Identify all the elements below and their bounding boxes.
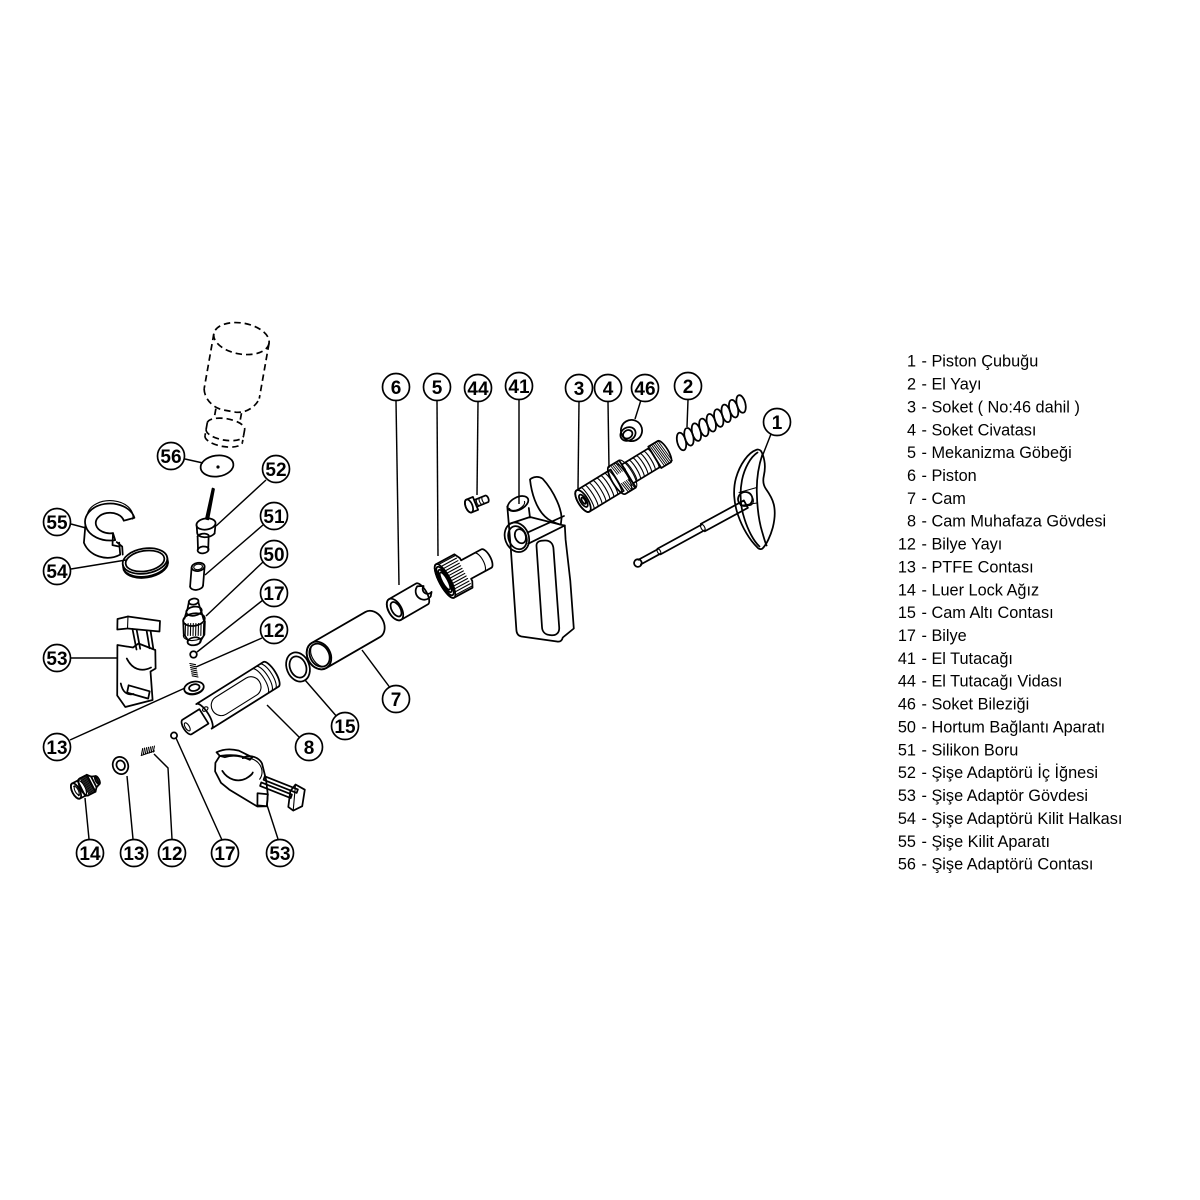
svg-text:53: 53 (898, 787, 916, 805)
svg-text:2: 2 (907, 376, 916, 394)
svg-text:13: 13 (123, 844, 144, 865)
svg-text:4: 4 (603, 379, 614, 400)
svg-text:53: 53 (46, 649, 67, 670)
svg-text:- El Tutacağı Vidası: - El Tutacağı Vidası (922, 673, 1063, 691)
svg-text:- Cam Muhafaza Gövdesi: - Cam Muhafaza Gövdesi (922, 513, 1107, 531)
svg-text:44: 44 (898, 673, 916, 691)
svg-text:7: 7 (907, 490, 916, 508)
svg-text:56: 56 (898, 856, 916, 874)
svg-text:1: 1 (772, 413, 783, 434)
svg-text:2: 2 (683, 377, 694, 398)
svg-text:54: 54 (46, 562, 68, 583)
svg-text:15: 15 (898, 604, 916, 622)
svg-text:14: 14 (898, 581, 916, 599)
svg-text:1: 1 (907, 353, 916, 371)
svg-text:14: 14 (79, 844, 101, 865)
svg-text:- El Tutacağı: - El Tutacağı (922, 650, 1013, 668)
svg-text:5: 5 (907, 444, 916, 462)
svg-text:12: 12 (161, 844, 182, 865)
svg-text:- Şişe Adaptörü Kilit Halkası: - Şişe Adaptörü Kilit Halkası (922, 810, 1123, 828)
svg-text:- Soket Bileziği: - Soket Bileziği (922, 696, 1030, 714)
svg-text:50: 50 (898, 719, 916, 737)
svg-text:3: 3 (574, 379, 585, 400)
svg-text:55: 55 (898, 833, 916, 851)
svg-text:51: 51 (263, 507, 285, 528)
svg-text:55: 55 (46, 513, 68, 534)
svg-text:- Cam: - Cam (922, 490, 966, 508)
svg-text:- Piston: - Piston (922, 467, 977, 485)
svg-text:- Silikon Boru: - Silikon Boru (922, 741, 1019, 759)
svg-text:- Hortum Bağlantı Aparatı: - Hortum Bağlantı Aparatı (922, 719, 1106, 737)
svg-text:- Bilye: - Bilye (922, 627, 967, 645)
svg-text:- Şişe Adaptör Gövdesi: - Şişe Adaptör Gövdesi (922, 787, 1089, 805)
svg-text:- Şişe Adaptörü Contası: - Şişe Adaptörü Contası (922, 856, 1094, 874)
svg-text:- Şişe Kilit Aparatı: - Şişe Kilit Aparatı (922, 833, 1051, 851)
svg-text:6: 6 (391, 378, 402, 399)
svg-text:41: 41 (508, 377, 530, 398)
svg-text:46: 46 (898, 696, 916, 714)
svg-text:3: 3 (907, 398, 916, 416)
svg-text:8: 8 (304, 738, 315, 759)
svg-text:51: 51 (898, 741, 916, 759)
svg-text:17: 17 (214, 844, 235, 865)
svg-text:53: 53 (269, 844, 290, 865)
svg-text:- Luer Lock Ağız: - Luer Lock Ağız (922, 581, 1040, 599)
svg-text:46: 46 (634, 379, 655, 400)
svg-text:52: 52 (265, 460, 286, 481)
svg-text:4: 4 (907, 421, 916, 439)
svg-text:13: 13 (898, 558, 916, 576)
svg-text:- El Yayı: - El Yayı (922, 376, 982, 394)
svg-text:- Bilye Yayı: - Bilye Yayı (922, 536, 1003, 554)
svg-text:17: 17 (263, 584, 284, 605)
svg-text:- Cam Altı Contası: - Cam Altı Contası (922, 604, 1054, 622)
svg-text:- Soket ( No:46 dahil ): - Soket ( No:46 dahil ) (922, 398, 1080, 416)
svg-text:41: 41 (898, 650, 916, 668)
svg-text:- Soket Civatası: - Soket Civatası (922, 421, 1037, 439)
svg-text:15: 15 (334, 717, 356, 738)
svg-text:54: 54 (898, 810, 916, 828)
svg-text:50: 50 (263, 545, 284, 566)
svg-text:8: 8 (907, 513, 916, 531)
svg-text:6: 6 (907, 467, 916, 485)
svg-text:7: 7 (391, 690, 402, 711)
svg-text:56: 56 (160, 447, 181, 468)
svg-text:12: 12 (898, 536, 916, 554)
svg-text:17: 17 (898, 627, 916, 645)
svg-text:- Şişe Adaptörü İç İğnesi: - Şişe Adaptörü İç İğnesi (922, 763, 1098, 782)
svg-text:- Piston Çubuğu: - Piston Çubuğu (922, 353, 1039, 371)
svg-text:5: 5 (432, 378, 443, 399)
svg-text:44: 44 (467, 379, 489, 400)
svg-text:- PTFE Contası: - PTFE Contası (922, 558, 1034, 576)
svg-text:13: 13 (46, 738, 67, 759)
svg-text:- Mekanizma Göbeği: - Mekanizma Göbeği (922, 444, 1072, 462)
svg-text:52: 52 (898, 764, 916, 782)
svg-text:12: 12 (263, 621, 284, 642)
